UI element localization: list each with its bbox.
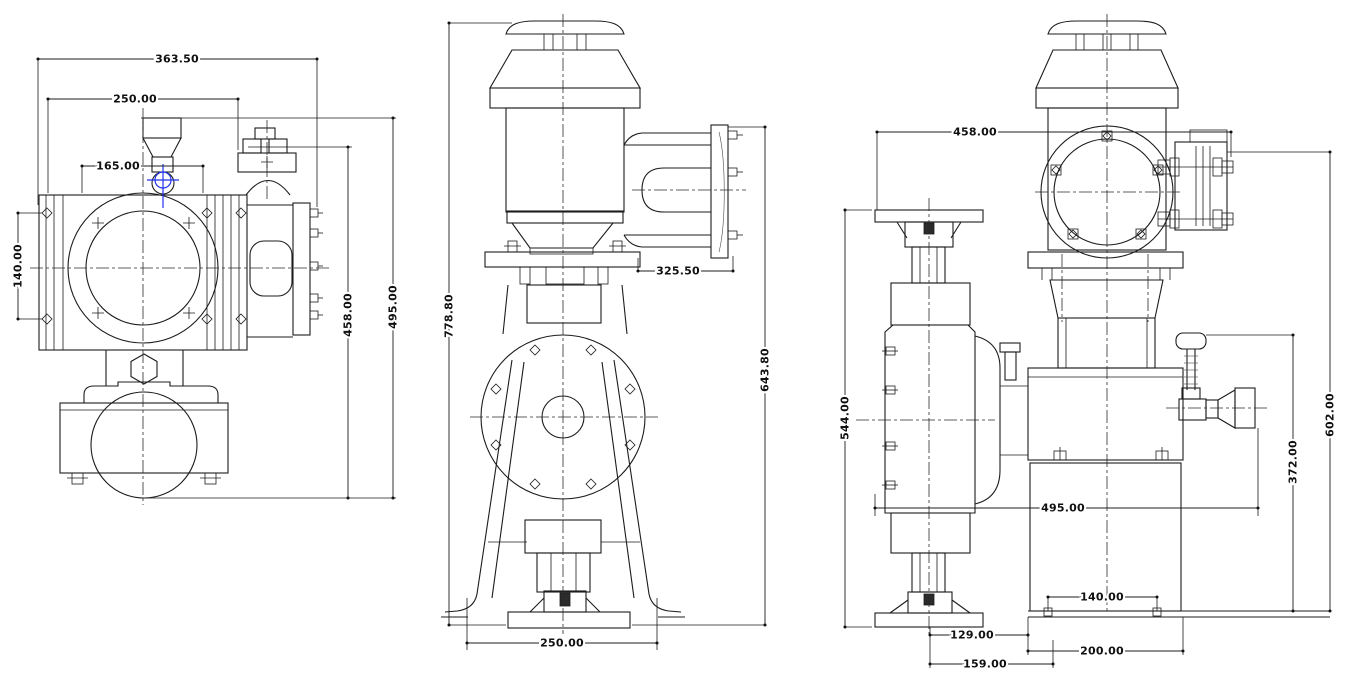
discharge-valve-top: [238, 120, 296, 200]
pump-head-top: [247, 203, 323, 337]
column-bolts: [882, 347, 898, 489]
diaphragm-head-front: [470, 335, 658, 499]
dimensions-side-view: 458.00 544.00 495.00 602.00 372.00 140.0…: [839, 126, 1337, 671]
pump-body-side: [1028, 252, 1330, 617]
view-top: 363.50 250.00 165.00 140.00 458.00 495.0…: [12, 53, 400, 506]
dim-side-base-length: 200.00: [1080, 645, 1124, 658]
drive-motor-top: [60, 350, 228, 498]
dim-front-head-extension: 325.50: [656, 265, 700, 278]
lantern-and-bellows-front: [485, 241, 640, 334]
dim-front-head-height: 643.80: [759, 348, 772, 392]
dimensions-top-view: 363.50 250.00 165.00 140.00 458.00 495.0…: [12, 53, 400, 499]
pump-head-front: [624, 125, 746, 258]
dim-front-overall-height: 778.80: [443, 294, 456, 338]
dim-front-foot-width: 250.00: [540, 637, 584, 650]
technical-drawing-page: 363.50 250.00 165.00 140.00 458.00 495.0…: [0, 0, 1360, 700]
dim-top-flange-width: 250.00: [113, 93, 157, 106]
motor-front: [490, 21, 640, 254]
dim-top-overall-depth: 495.00: [387, 285, 400, 329]
dim-top-depth-to-valve: 458.00: [342, 293, 355, 337]
pump-three-view-drawing: 363.50 250.00 165.00 140.00 458.00 495.0…: [0, 0, 1360, 700]
suction-port-top: [143, 118, 181, 194]
view-side: 458.00 544.00 495.00 602.00 372.00 140.0…: [839, 14, 1337, 671]
dim-side-top-width: 458.00: [953, 126, 997, 139]
dim-side-column-height: 544.00: [839, 396, 852, 440]
dim-side-base-offset-b: 159.00: [963, 658, 1007, 671]
hand-valve-side: [1166, 333, 1270, 428]
gearbox-flange-side: [1035, 126, 1180, 258]
dim-side-flange-height: 602.00: [1324, 393, 1337, 437]
dim-side-slot-spacing: 140.00: [1080, 591, 1124, 604]
view-front: 778.80 643.80 325.50 250.00: [441, 14, 772, 650]
dim-top-overall-width: 363.50: [155, 53, 199, 66]
dimensions-front-view: 778.80 643.80 325.50 250.00: [443, 23, 772, 650]
pedestal-front: [508, 520, 630, 628]
dim-top-bolt-spacing: 140.00: [12, 244, 25, 288]
dim-side-mid-width: 495.00: [1041, 502, 1085, 515]
dim-side-base-offset-a: 129.00: [950, 629, 994, 642]
dim-top-port-offset: 165.00: [96, 160, 140, 173]
support-column-side: [856, 198, 1028, 634]
dim-side-valve-height: 372.00: [1287, 440, 1300, 484]
